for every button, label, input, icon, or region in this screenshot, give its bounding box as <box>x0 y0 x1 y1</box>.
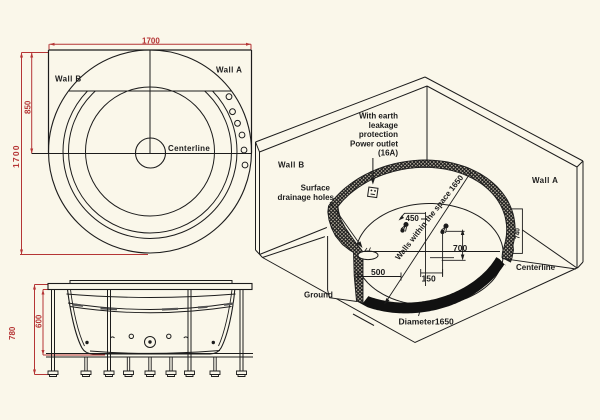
svg-text:Wall A: Wall A <box>532 176 558 185</box>
svg-text:700: 700 <box>453 243 467 253</box>
svg-text:Wall B: Wall B <box>55 75 82 84</box>
svg-text:leakage: leakage <box>369 121 399 130</box>
svg-text:850: 850 <box>24 100 33 114</box>
svg-text:With earth: With earth <box>359 112 398 121</box>
svg-text:150: 150 <box>422 274 436 284</box>
svg-text:450: 450 <box>406 214 420 223</box>
svg-text:Centerline: Centerline <box>168 144 210 153</box>
svg-text:600: 600 <box>35 314 44 328</box>
svg-text:Wall B: Wall B <box>278 161 305 170</box>
svg-text:(16A): (16A) <box>378 149 398 158</box>
svg-text:1700: 1700 <box>142 37 160 46</box>
svg-text:Surface: Surface <box>301 184 331 193</box>
svg-text:780: 780 <box>8 326 17 340</box>
svg-text:protection: protection <box>359 130 398 139</box>
svg-text:Power outlet: Power outlet <box>350 139 398 148</box>
svg-text:drainage holes: drainage holes <box>278 193 335 202</box>
svg-text:Diameter1650: Diameter1650 <box>399 317 455 327</box>
svg-text:Centerline: Centerline <box>516 263 556 272</box>
svg-text:Ground: Ground <box>304 291 333 300</box>
svg-text:1700: 1700 <box>11 144 21 168</box>
svg-text:Wall A: Wall A <box>216 66 242 75</box>
svg-text:500: 500 <box>371 267 385 277</box>
